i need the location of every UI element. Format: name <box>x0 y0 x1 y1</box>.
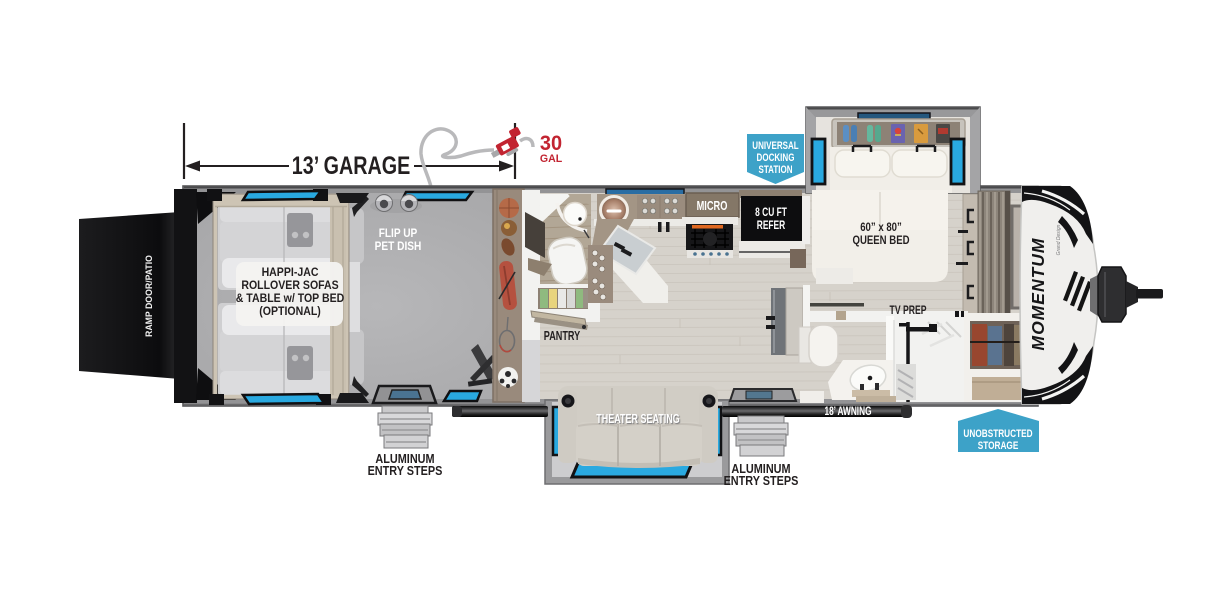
svg-text:DOCKING: DOCKING <box>757 152 795 165</box>
svg-text:ENTRY STEPS: ENTRY STEPS <box>724 474 799 488</box>
svg-text:REFER: REFER <box>757 220 786 233</box>
svg-text:8 CU FT: 8 CU FT <box>755 207 787 220</box>
svg-text:ROLLOVER SOFAS: ROLLOVER SOFAS <box>241 279 339 292</box>
svg-text:(OPTIONAL): (OPTIONAL) <box>259 305 321 318</box>
svg-text:ENTRY STEPS: ENTRY STEPS <box>368 464 443 478</box>
svg-text:UNOBSTRUCTED: UNOBSTRUCTED <box>963 428 1032 440</box>
svg-text:STORAGE: STORAGE <box>978 440 1019 452</box>
svg-text:Grand Design: Grand Design <box>1056 224 1062 255</box>
svg-text:MICRO: MICRO <box>697 200 728 214</box>
svg-text:THEATER SEATING: THEATER SEATING <box>596 413 680 427</box>
svg-text:STATION: STATION <box>758 164 792 177</box>
svg-text:UNIVERSAL: UNIVERSAL <box>752 140 798 153</box>
svg-text:RAMP DOOR/PATIO: RAMP DOOR/PATIO <box>144 255 154 337</box>
svg-text:TV PREP: TV PREP <box>890 305 927 318</box>
svg-text:PANTRY: PANTRY <box>544 330 581 344</box>
svg-text:PET DISH: PET DISH <box>375 240 422 253</box>
svg-text:60” x 80”: 60” x 80” <box>860 221 902 234</box>
svg-text:QUEEN BED: QUEEN BED <box>852 234 909 247</box>
svg-text:GAL: GAL <box>540 153 563 165</box>
svg-text:HAPPI-JAC: HAPPI-JAC <box>262 266 319 279</box>
svg-text:MOMENTUM: MOMENTUM <box>1028 238 1048 351</box>
svg-text:& TABLE w/ TOP BED: & TABLE w/ TOP BED <box>236 292 344 305</box>
svg-text:18’ AWNING: 18’ AWNING <box>824 406 871 419</box>
svg-text:30: 30 <box>540 132 562 156</box>
svg-text:13’ GARAGE: 13’ GARAGE <box>292 152 410 180</box>
svg-text:FLIP UP: FLIP UP <box>379 227 418 240</box>
